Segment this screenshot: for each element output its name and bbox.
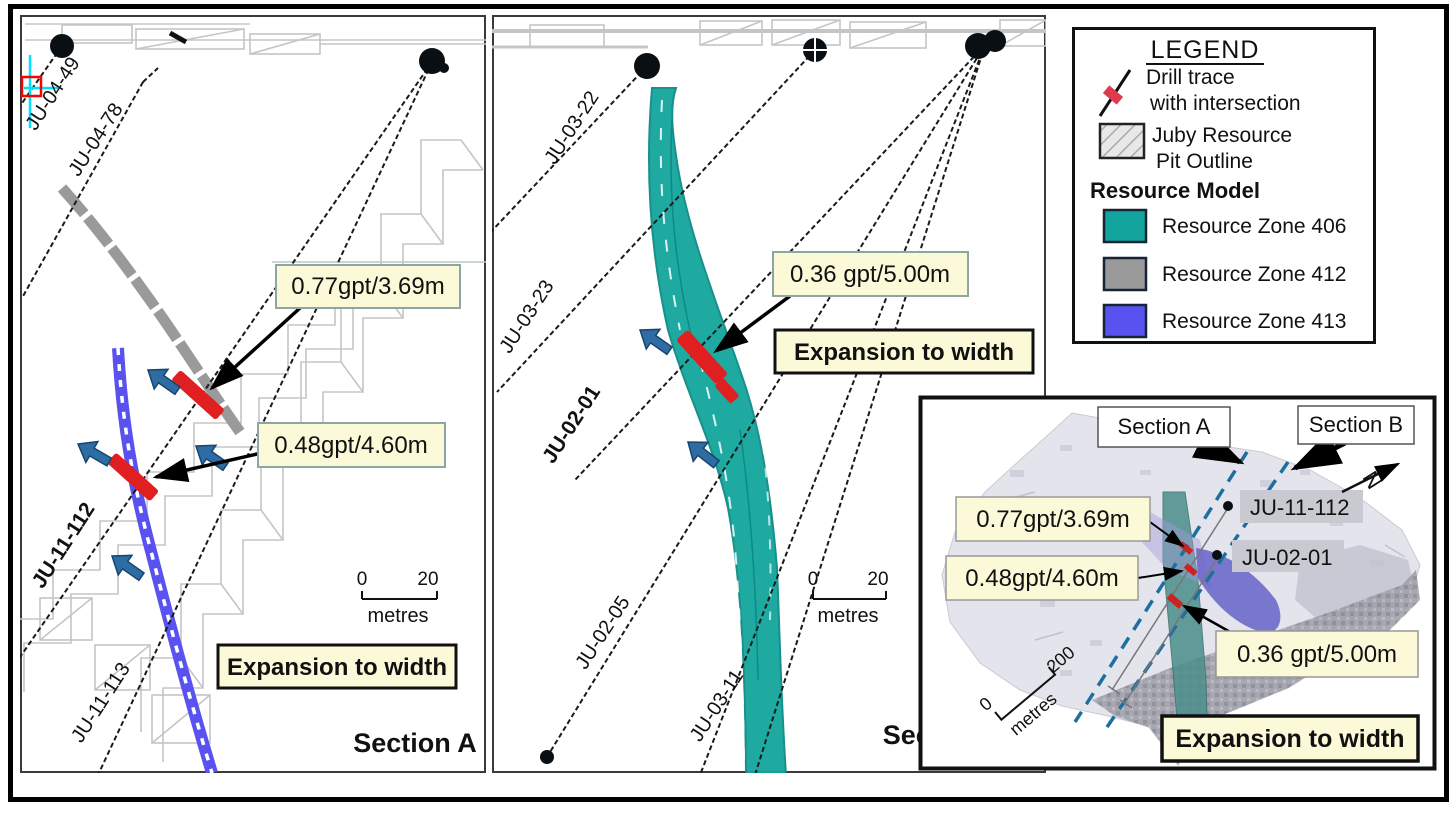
legend-panel: LEGEND Drill trace with intersection Jub… [1072,27,1376,344]
inset-section-a-label: Section A [1118,414,1211,439]
scale-value: 20 [867,569,888,590]
inset-expansion-text: Expansion to width [1175,725,1404,753]
annotation-text-036: 0.36 gpt/5.00m [790,261,950,288]
inset-section-b-label: Section B [1309,412,1403,437]
legend-drill-trace-line2: with intersection [1149,92,1301,115]
figure-canvas: 0.77gpt/3.69m 0.48gpt/4.60m 0 20 metres … [0,0,1451,816]
zone-406-swatch [1104,210,1146,242]
legend-zone-406-label: Resource Zone 406 [1162,215,1346,238]
inset-3d-view: JU-11-112 JU-02-01 Section A Section B N… [918,395,1437,771]
zone-413-swatch [1104,305,1146,337]
legend-pit-line2: Pit Outline [1156,150,1253,173]
inset-annotation-048: 0.48gpt/4.60m [965,565,1118,592]
drill-collar [540,750,554,764]
legend-pit-line1: Juby Resource [1152,124,1292,147]
annotation-text-077: 0.77gpt/3.69m [291,273,444,300]
scale-zero: 0 [357,569,368,590]
legend-resource-model-heading: Resource Model [1090,178,1260,203]
legend-zone-413-label: Resource Zone 413 [1162,310,1346,333]
legend-drill-trace-line1: Drill trace [1146,66,1235,89]
section-a-title: Section A [353,728,477,758]
inset-annotation-077: 0.77gpt/3.69m [976,506,1129,533]
zone-412-swatch [1104,258,1146,290]
inset-hole-ju-11-112: JU-11-112 [1250,495,1349,520]
scale-unit: metres [367,605,428,627]
drill-collar [634,53,660,79]
expansion-text-a: Expansion to width [227,654,447,681]
inset-annotation-036: 0.36 gpt/5.00m [1237,641,1397,668]
pit-outline-swatch [1100,124,1144,158]
inset-hole-ju-02-01: JU-02-01 [1242,545,1332,570]
annotation-text-048: 0.48gpt/4.60m [274,432,427,459]
scale-zero: 0 [808,569,819,590]
section-a-panel: 0.77gpt/3.69m 0.48gpt/4.60m 0 20 metres … [20,15,486,773]
legend-zone-412-label: Resource Zone 412 [1162,263,1346,286]
inset-collar-ju-11-112 [1223,501,1233,511]
drill-collar [439,63,449,73]
scale-value: 20 [417,569,438,590]
drill-collar [50,34,74,58]
scale-unit: metres [817,605,878,627]
inset-collar-ju-02-01 [1212,550,1222,560]
expansion-text-b: Expansion to width [794,339,1014,366]
legend-title: LEGEND [1151,36,1260,64]
